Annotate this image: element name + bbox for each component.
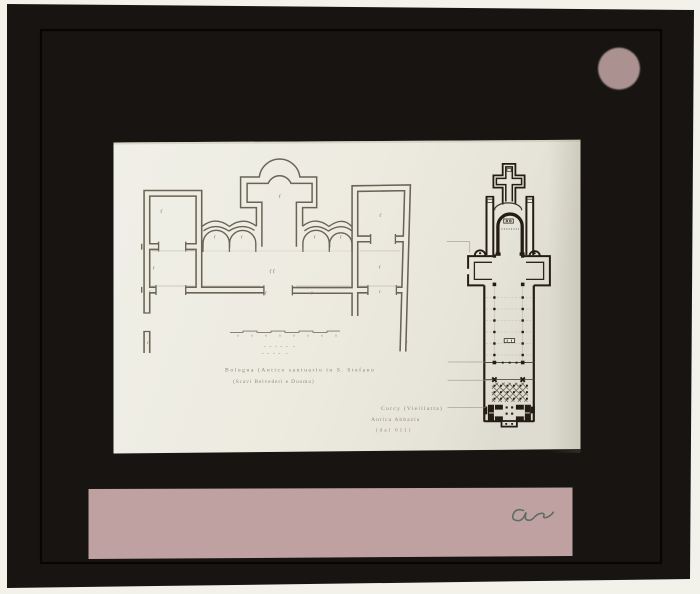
svg-text:(dal 611): (dal 611) xyxy=(376,427,411,434)
svg-text:Bologna (Antico santuario in: Bologna (Antico santuario in S. Stefano xyxy=(225,367,374,374)
svg-text:(Scavi Belvederi e Duomo): (Scavi Belvederi e Duomo) xyxy=(233,378,314,385)
svg-text:Curcy (Vieillatta): Curcy (Vieillatta) xyxy=(381,405,442,412)
svg-text:Antica Abbazia: Antica Abbazia xyxy=(371,417,420,423)
